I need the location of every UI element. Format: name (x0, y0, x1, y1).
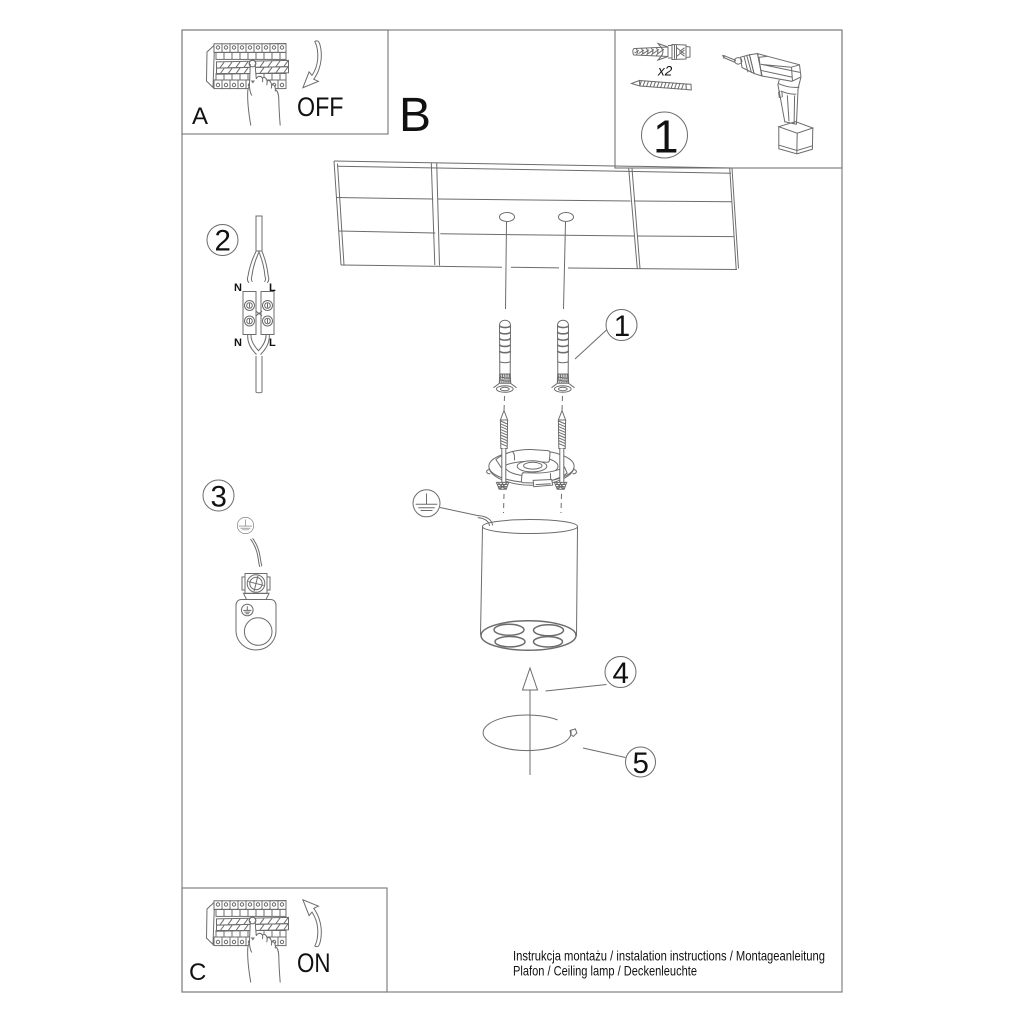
svg-text:A: A (192, 103, 208, 130)
svg-text:L: L (269, 337, 276, 349)
svg-text:2: 2 (215, 225, 231, 258)
svg-text:B: B (399, 89, 431, 142)
svg-text:ON: ON (297, 948, 331, 978)
svg-text:4: 4 (613, 657, 629, 690)
svg-text:N: N (234, 282, 242, 294)
svg-text:OFF: OFF (297, 92, 344, 122)
svg-text:5: 5 (633, 747, 649, 780)
svg-text:L: L (269, 282, 276, 294)
svg-text:3: 3 (211, 480, 227, 513)
svg-text:Plafon / Ceiling lamp / Decken: Plafon / Ceiling lamp / Deckenleuchte (513, 964, 697, 979)
svg-text:1: 1 (653, 111, 679, 163)
svg-text:C: C (189, 959, 206, 986)
svg-text:Instrukcja montażu / instalati: Instrukcja montażu / instalation instruc… (513, 949, 825, 964)
svg-text:N: N (234, 337, 242, 349)
svg-text:x2: x2 (657, 64, 673, 79)
svg-text:1: 1 (614, 310, 630, 343)
